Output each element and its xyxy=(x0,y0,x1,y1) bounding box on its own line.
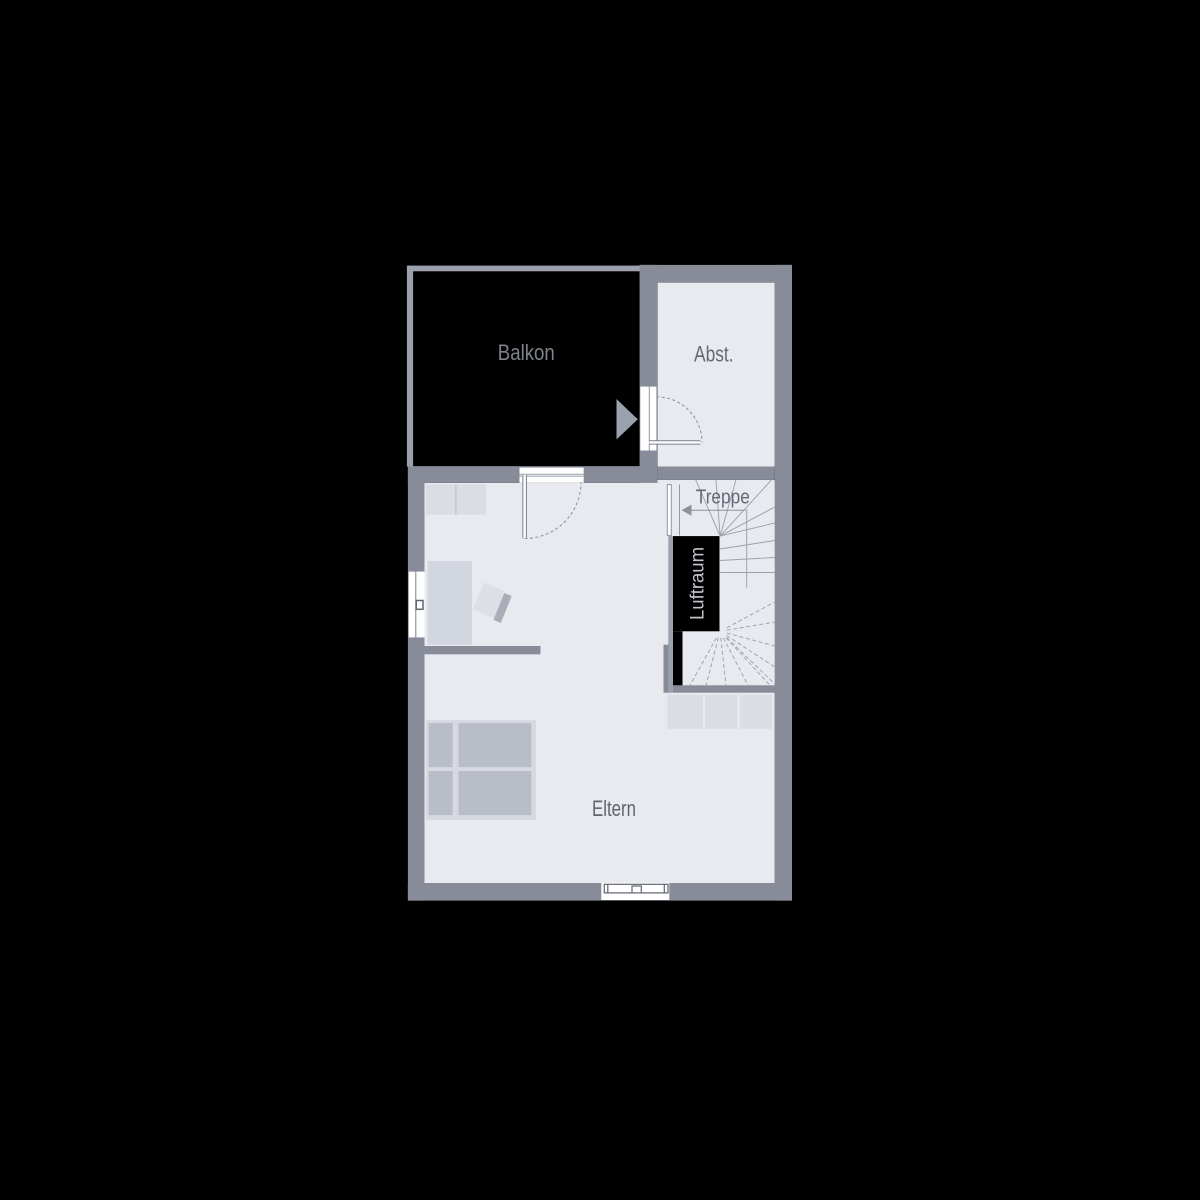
svg-text:Abst.: Abst. xyxy=(694,342,734,367)
svg-text:Treppe: Treppe xyxy=(696,487,750,509)
svg-text:Luftraum: Luftraum xyxy=(687,547,709,620)
svg-text:Balkon: Balkon xyxy=(498,340,555,365)
svg-text:Eltern: Eltern xyxy=(592,796,636,821)
